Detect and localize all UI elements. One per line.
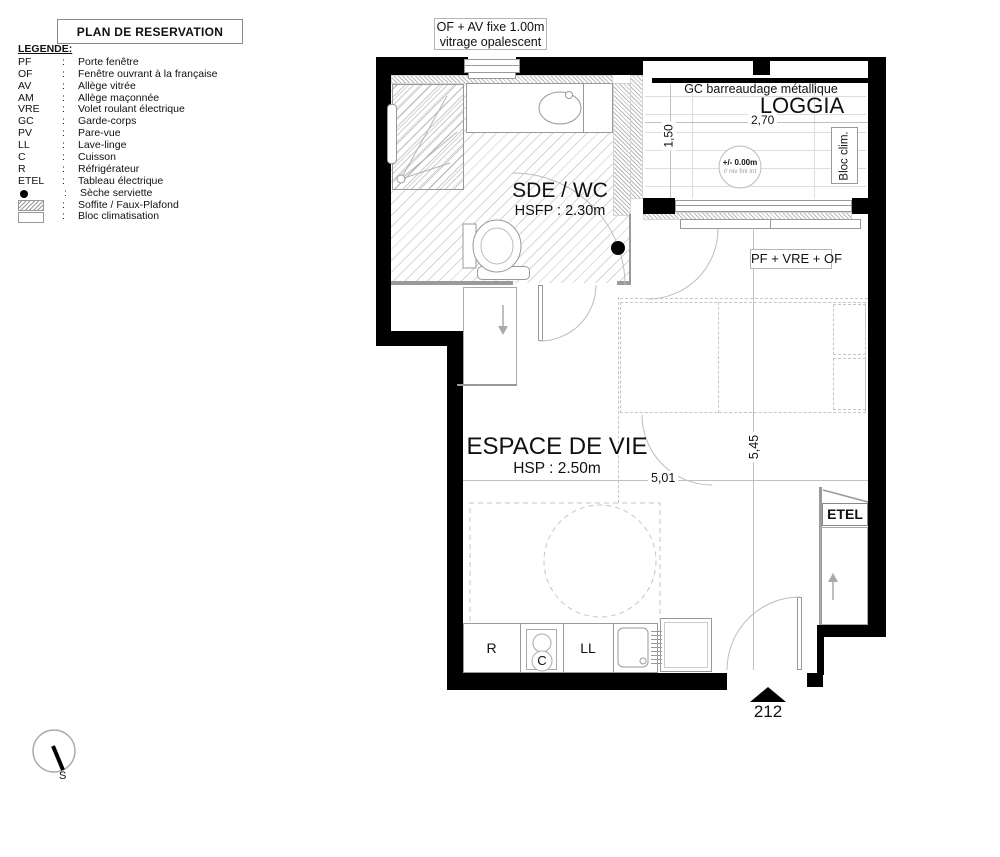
loggia-width-dim: 2,70 (748, 113, 777, 127)
compass-south-label: S (59, 770, 66, 782)
furniture-zone-outline (470, 503, 660, 621)
shower-spray-line (401, 132, 457, 179)
living-height: HSP : 2.50m (457, 460, 657, 478)
etel-label: ETEL (822, 506, 868, 522)
loggia-depth-dim-wrap: 1,50 (653, 120, 685, 152)
living-depth-dim-wrap: 5,45 (737, 430, 771, 464)
door-arc-entrance (727, 597, 800, 670)
kitchen-sink-drain (640, 658, 646, 664)
entry-closet-arrow-head (828, 573, 838, 582)
level-marker-sub: // niv fini int (712, 168, 768, 175)
bloc-clim-box: Bloc clim. (831, 127, 858, 184)
shower-drain (397, 175, 405, 183)
vestibule-arrow-head (498, 326, 508, 335)
table-circle (544, 505, 656, 617)
door-arc-vestibule (540, 285, 596, 341)
window-note-line2: vitrage opalescent (435, 35, 546, 50)
window-note: OF + AV fixe 1.00m vitrage opalescent (434, 18, 547, 50)
fridge-label: R (463, 640, 520, 656)
bloc-clim-label: Bloc clim. (839, 131, 851, 180)
window-note-line1: OF + AV fixe 1.00m (435, 20, 546, 35)
cooktop-burner (533, 634, 551, 652)
washer-label: LL (563, 640, 613, 656)
sde-wc-name: SDE / WC (490, 179, 630, 203)
compass-needle (53, 746, 63, 770)
living-depth-dim: 5,45 (747, 432, 761, 462)
sde-wc-height: HSFP : 2.30m (490, 203, 630, 219)
level-marker-value: +/- 0.00m (712, 158, 768, 167)
sink-basin (539, 92, 581, 124)
cooktop-label: C (535, 653, 549, 668)
sink-faucet (566, 92, 573, 99)
floor-plan-sheet: PLAN DE RESERVATION LEGENDE: PF:Porte fe… (0, 0, 1000, 857)
seche-serviette-dot (611, 241, 625, 255)
level-marker-circle (719, 146, 761, 188)
living-name: ESPACE DE VIE (457, 433, 657, 461)
loggia-depth-dim: 1,50 (662, 121, 676, 150)
etel-panel-line (823, 490, 868, 502)
unit-triangle-marker (750, 687, 786, 702)
pf-window-note: PF + VRE + OF (750, 249, 832, 269)
door-arc-pf-window (648, 229, 718, 299)
unit-number: 212 (744, 702, 792, 722)
living-width-dim: 5,01 (648, 471, 678, 485)
